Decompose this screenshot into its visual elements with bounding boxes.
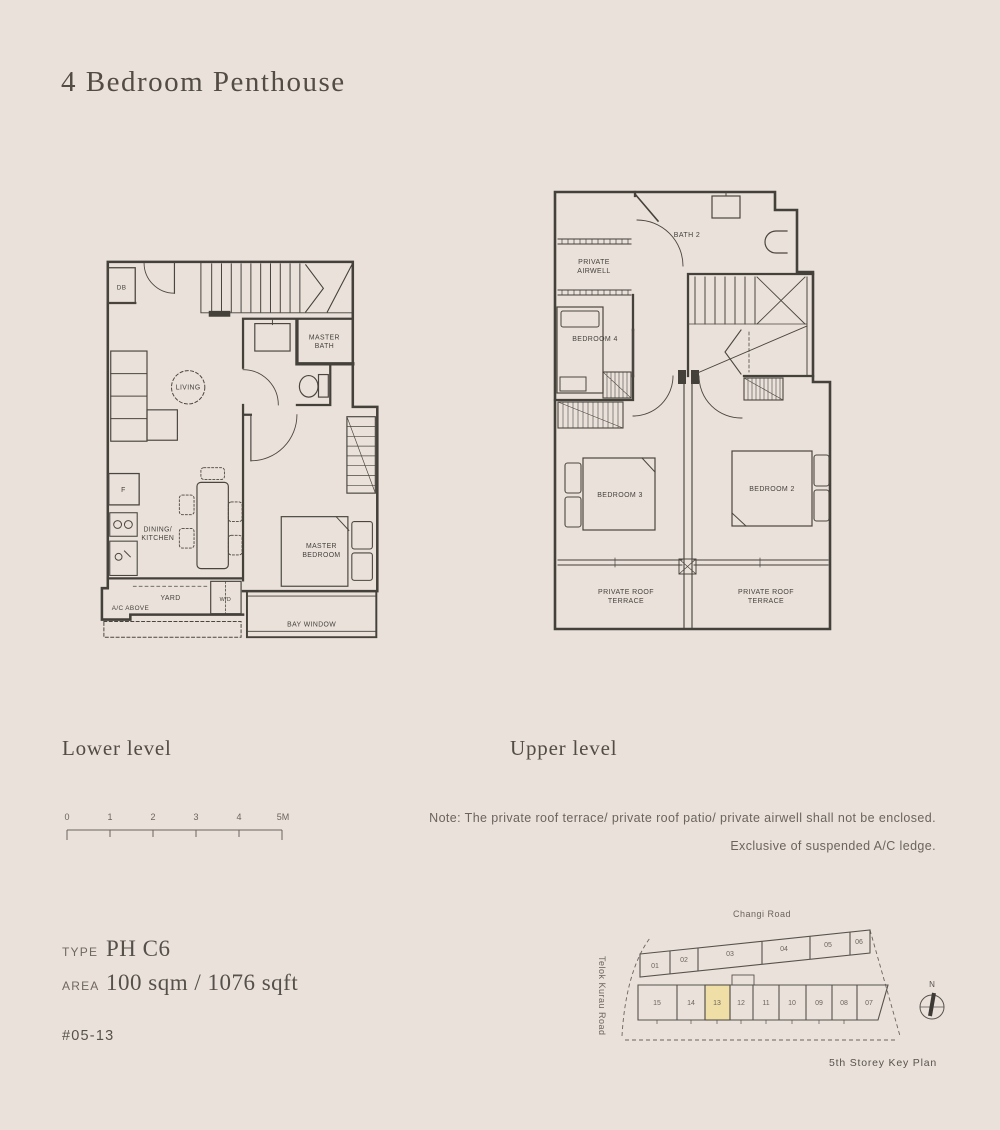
type-row: TYPEPH C6 [62,936,171,962]
room-label-terrace-right-2: TERRACE [748,598,784,605]
unit-cell: 09 [815,1000,823,1007]
unit-cell: 04 [780,946,788,953]
lower-level-caption: Lower level [62,736,172,761]
type-value: PH C6 [106,936,171,961]
unit-cell: 11 [762,1000,769,1007]
note-line-1: Note: The private roof terrace/ private … [376,804,936,832]
room-label-terrace-right-1: PRIVATE ROOF [738,589,794,596]
room-label-ac-above: A/C ABOVE [112,605,149,612]
unit-cell: 06 [855,939,863,946]
area-value: 100 sqm / 1076 sqft [106,970,298,995]
unit-cell: 10 [788,1000,796,1007]
road-label-telok-kurau: Telok Kurau Road [597,956,607,1036]
key-plan-title: 5th Storey Key Plan [829,1057,937,1069]
room-label-dining-2: KITCHEN [141,535,174,542]
area-row: AREA100 sqm / 1076 sqft [62,970,298,996]
disclaimer-note: Note: The private roof terrace/ private … [376,804,936,860]
room-label-bedroom3: BEDROOM 3 [597,492,643,499]
unit-number: #05-13 [62,1028,114,1044]
unit-cell: 15 [653,1000,661,1007]
room-label-airwell-1: PRIVATE [578,259,610,266]
unit-cell: 03 [726,951,734,958]
room-label-bedroom4: BEDROOM 4 [572,336,618,343]
unit-cell: 07 [865,1000,873,1007]
scale-tick-label: 4 [236,812,241,822]
unit-cell: 08 [840,1000,848,1007]
room-label-bedroom2: BEDROOM 2 [749,486,795,493]
unit-cell: 12 [737,1000,745,1007]
unit-cell: 05 [824,942,832,949]
unit-cell: 01 [651,963,659,970]
room-label-bath2: BATH 2 [674,232,700,239]
unit-cell: 02 [680,957,688,964]
note-line-2: Exclusive of suspended A/C ledge. [376,832,936,860]
area-label: AREA [62,979,106,993]
unit-cell-highlighted: 13 [713,1000,721,1007]
lower-plan-room-labels: DB LIVING MASTER BATH F DINING/ KITCHEN … [112,284,341,628]
room-label-db: DB [117,284,127,291]
scale-tick-label: 3 [193,812,198,822]
room-label-bay-window: BAY WINDOW [287,621,336,628]
storey-key-plan: 01 02 03 04 05 06 15 14 13 12 11 10 09 0… [580,890,960,1090]
room-label-terrace-left-2: TERRACE [608,598,644,605]
room-label-master-bath-2: BATH [315,343,334,350]
room-label-wd: W/D [220,597,232,603]
scale-bar-ruler [67,830,282,840]
unit-cell: 14 [687,1000,695,1007]
scale-tick-label: 1 [107,812,112,822]
type-label: TYPE [62,945,106,959]
upper-plan-walls [555,192,830,629]
room-label-living: LIVING [176,385,201,392]
upper-level-caption: Upper level [510,736,617,761]
compass-north-label: N [929,980,935,989]
room-label-terrace-left-1: PRIVATE ROOF [598,589,654,596]
scale-tick-label: 5M [277,812,290,822]
upper-level-floor-plan: PRIVATE AIRWELL BATH 2 BEDROOM 4 BEDROOM… [545,184,845,639]
room-label-airwell-2: AIRWELL [577,268,610,275]
room-label-fridge: F [121,487,126,494]
scale-bar-labels: 0 1 2 3 4 5M [64,812,289,822]
page-title: 4 Bedroom Penthouse [61,66,346,99]
room-label-yard: YARD [160,595,180,602]
room-label-master-bedroom-2: BEDROOM [302,552,340,559]
scale-tick-label: 0 [64,812,69,822]
compass-icon: N [920,980,944,1019]
room-label-dining-1: DINING/ [143,526,172,533]
lower-level-floor-plan: DB LIVING MASTER BATH F DINING/ KITCHEN … [98,250,392,652]
brochure-page: 4 Bedroom Penthouse [0,0,1000,1130]
key-plan-building [638,930,888,1024]
scale-bar: 0 1 2 3 4 5M [64,810,304,846]
road-label-changi: Changi Road [733,909,791,919]
scale-tick-label: 2 [150,812,155,822]
room-label-master-bedroom-1: MASTER [306,543,337,550]
room-label-master-bath-1: MASTER [309,334,340,341]
